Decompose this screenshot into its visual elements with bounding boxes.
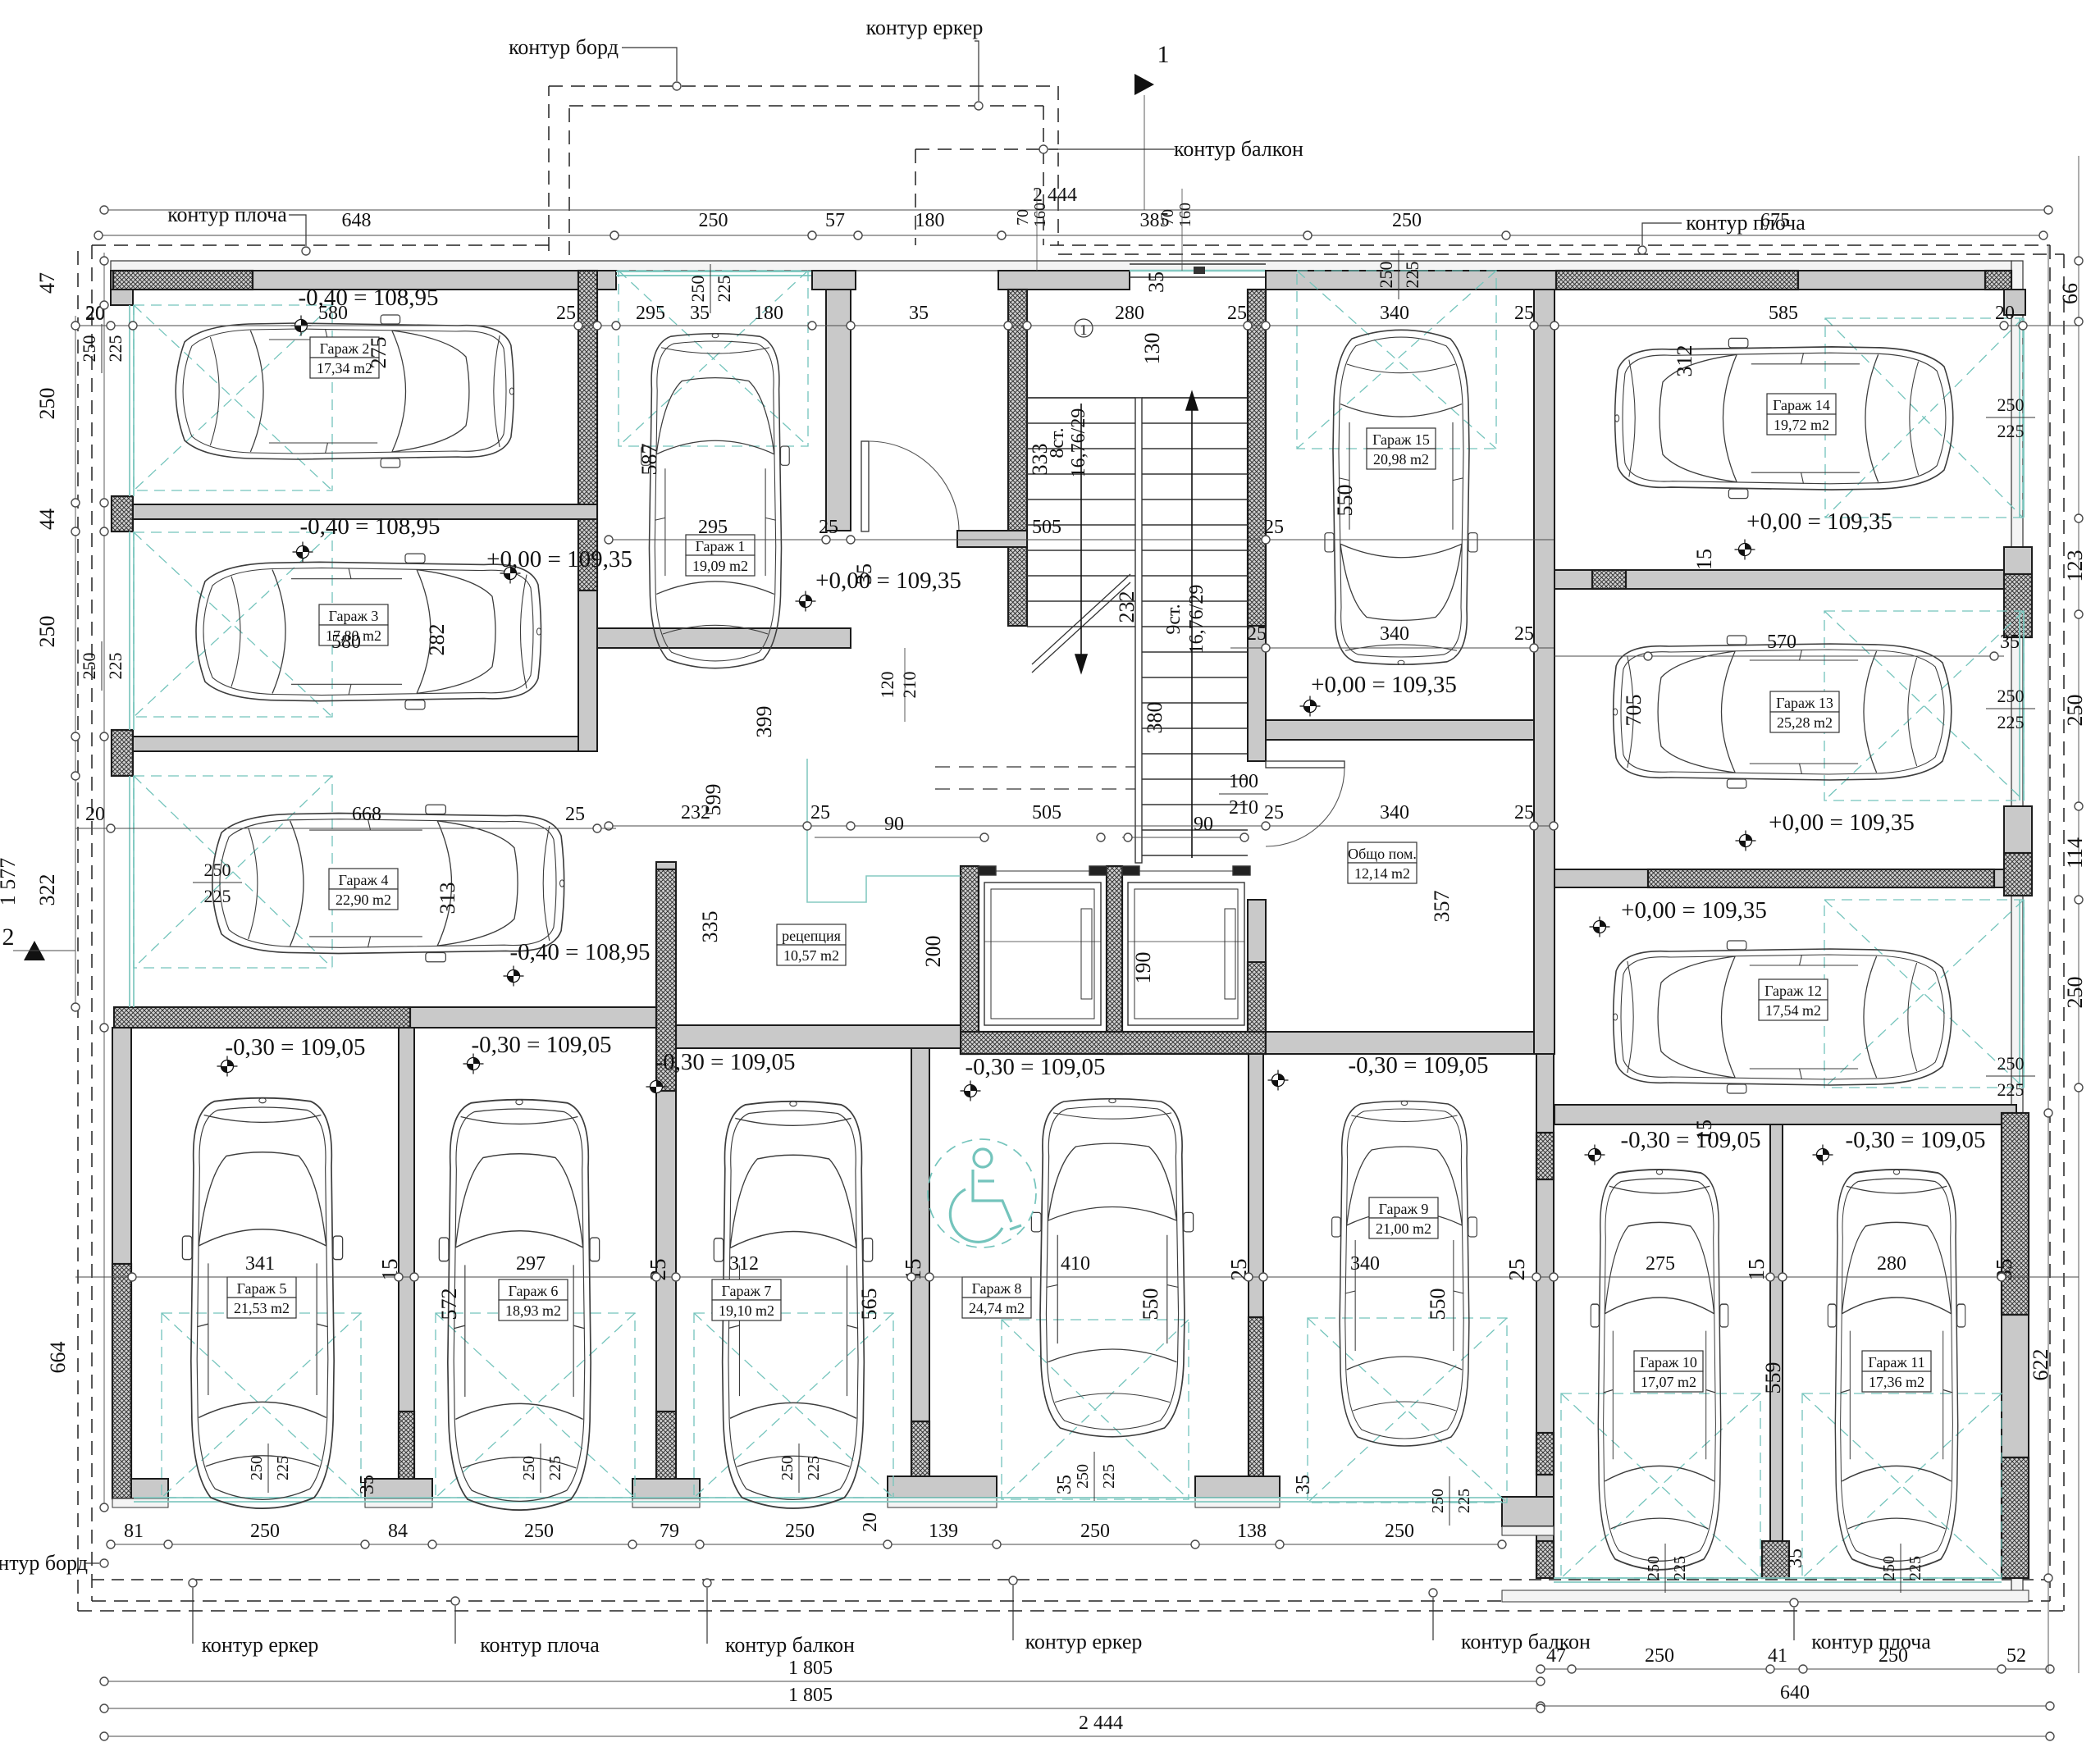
svg-text:250: 250 — [1997, 686, 2025, 706]
svg-text:225: 225 — [105, 653, 126, 680]
svg-text:232: 232 — [1115, 591, 1139, 623]
svg-text:380: 380 — [1143, 702, 1166, 734]
svg-text:15: 15 — [1692, 1120, 1716, 1141]
svg-text:Общо пом.: Общо пом. — [1348, 846, 1417, 862]
svg-text:25,28 m2: 25,28 m2 — [1777, 714, 1833, 731]
svg-text:1 805: 1 805 — [788, 1685, 833, 1706]
svg-text:Гараж 14: Гараж 14 — [1773, 397, 1830, 413]
svg-text:25: 25 — [810, 802, 830, 823]
svg-text:1 805: 1 805 — [788, 1658, 833, 1679]
svg-text:250: 250 — [79, 335, 99, 363]
svg-text:585: 585 — [1769, 303, 1798, 324]
svg-text:35: 35 — [690, 303, 710, 324]
svg-text:123: 123 — [2063, 550, 2087, 582]
svg-text:25: 25 — [1514, 802, 1534, 823]
svg-text:180: 180 — [754, 303, 783, 324]
svg-text:25: 25 — [1247, 623, 1267, 645]
svg-text:275: 275 — [367, 337, 390, 369]
svg-text:225: 225 — [204, 886, 231, 906]
svg-text:505: 505 — [1032, 517, 1061, 538]
svg-text:280: 280 — [1115, 303, 1144, 324]
svg-text:17,07 m2: 17,07 m2 — [1641, 1374, 1696, 1390]
svg-text:Гараж 8: Гараж 8 — [972, 1280, 1022, 1297]
svg-text:225: 225 — [274, 1456, 292, 1480]
svg-text:160: 160 — [1031, 203, 1049, 227]
svg-text:20: 20 — [85, 804, 105, 825]
svg-text:333: 333 — [1028, 444, 1052, 476]
svg-text:599: 599 — [701, 784, 725, 816]
svg-text:335: 335 — [698, 911, 722, 943]
svg-text:297: 297 — [516, 1253, 546, 1275]
svg-text:250: 250 — [35, 388, 59, 420]
svg-text:35: 35 — [357, 1475, 378, 1494]
svg-text:250: 250 — [1376, 262, 1396, 289]
svg-text:622: 622 — [2029, 1349, 2052, 1381]
svg-text:20: 20 — [860, 1512, 881, 1532]
svg-text:225: 225 — [546, 1456, 564, 1480]
svg-text:225: 225 — [1402, 262, 1422, 289]
svg-text:17,54 m2: 17,54 m2 — [1765, 1002, 1821, 1019]
svg-text:9ст.: 9ст. — [1163, 604, 1185, 634]
svg-text:570: 570 — [1767, 632, 1796, 653]
svg-text:70: 70 — [1014, 209, 1032, 226]
svg-text:282: 282 — [425, 624, 449, 656]
svg-text:+0,00 = 109,35: +0,00 = 109,35 — [1311, 672, 1457, 698]
svg-text:312: 312 — [1673, 345, 1696, 377]
svg-text:84: 84 — [388, 1521, 408, 1542]
svg-text:35: 35 — [2000, 632, 2020, 653]
svg-text:250: 250 — [778, 1456, 797, 1480]
svg-text:250: 250 — [1080, 1521, 1110, 1542]
svg-text:контур балкон: контур балкон — [725, 1633, 855, 1657]
svg-text:контур борд: контур борд — [0, 1551, 88, 1575]
svg-text:1: 1 — [1080, 322, 1088, 338]
svg-text:рецепция: рецепция — [782, 928, 841, 944]
svg-text:-0,40 = 108,95: -0,40 = 108,95 — [509, 939, 650, 965]
svg-text:399: 399 — [752, 706, 776, 738]
svg-text:Гараж 12: Гараж 12 — [1764, 983, 1822, 999]
svg-text:120: 120 — [877, 672, 897, 699]
svg-text:225: 225 — [1997, 712, 2025, 732]
svg-text:35: 35 — [1293, 1475, 1314, 1494]
svg-text:44: 44 — [35, 509, 59, 530]
svg-text:-0,30 = 109,05: -0,30 = 109,05 — [225, 1034, 365, 1060]
svg-text:138: 138 — [1237, 1521, 1267, 1542]
svg-text:79: 79 — [660, 1521, 679, 1542]
svg-text:1: 1 — [1157, 41, 1170, 68]
svg-text:35: 35 — [909, 303, 929, 324]
svg-text:225: 225 — [1671, 1556, 1689, 1580]
svg-text:Гараж 11: Гараж 11 — [1868, 1354, 1924, 1371]
svg-text:505: 505 — [1032, 802, 1061, 823]
svg-text:180: 180 — [915, 210, 945, 231]
svg-text:664: 664 — [46, 1342, 70, 1374]
svg-text:19,72 m2: 19,72 m2 — [1774, 417, 1829, 433]
svg-text:35: 35 — [1054, 1475, 1075, 1494]
svg-text:25: 25 — [1514, 623, 1534, 645]
svg-text:25: 25 — [1264, 517, 1284, 538]
svg-text:21,53 m2: 21,53 m2 — [234, 1300, 290, 1316]
svg-text:20: 20 — [1995, 303, 2015, 324]
svg-text:250: 250 — [204, 860, 231, 880]
svg-text:25: 25 — [1514, 303, 1534, 324]
svg-text:200: 200 — [921, 936, 945, 968]
svg-text:225: 225 — [714, 276, 734, 303]
svg-text:Гараж 6: Гараж 6 — [509, 1283, 559, 1299]
svg-text:+0,00 = 109,35: +0,00 = 109,35 — [1621, 897, 1767, 924]
svg-text:15: 15 — [1744, 1259, 1769, 1281]
svg-text:565: 565 — [857, 1288, 881, 1320]
svg-text:210: 210 — [1229, 797, 1258, 819]
svg-text:312: 312 — [729, 1253, 759, 1275]
svg-text:57: 57 — [825, 210, 845, 231]
svg-text:250: 250 — [2063, 977, 2087, 1009]
svg-text:250: 250 — [699, 210, 728, 231]
svg-text:25: 25 — [565, 804, 585, 825]
svg-text:-0,30 = 109,05: -0,30 = 109,05 — [1845, 1127, 1985, 1153]
svg-text:контур плоча: контур плоча — [1811, 1630, 1931, 1653]
svg-text:41: 41 — [1768, 1645, 1787, 1667]
svg-text:70: 70 — [1159, 209, 1177, 226]
svg-text:2: 2 — [2, 924, 15, 951]
svg-text:225: 225 — [1997, 421, 2025, 441]
svg-text:Гараж 1: Гараж 1 — [696, 538, 746, 554]
svg-text:Гараж 2: Гараж 2 — [320, 340, 370, 357]
svg-text:250: 250 — [1074, 1464, 1092, 1489]
svg-text:357: 357 — [1430, 891, 1454, 923]
svg-text:18,93 m2: 18,93 m2 — [505, 1302, 561, 1319]
svg-text:410: 410 — [1061, 1253, 1090, 1275]
svg-text:668: 668 — [352, 804, 381, 825]
svg-text:250: 250 — [785, 1521, 815, 1542]
svg-text:250: 250 — [1392, 210, 1422, 231]
svg-text:35: 35 — [1785, 1548, 1806, 1568]
svg-text:190: 190 — [1131, 952, 1155, 984]
svg-text:250: 250 — [687, 276, 708, 303]
svg-text:контур борд: контур борд — [509, 35, 619, 59]
svg-text:Гараж 3: Гараж 3 — [329, 608, 379, 624]
svg-text:Гараж 13: Гараж 13 — [1776, 695, 1833, 711]
svg-text:250: 250 — [1997, 395, 2025, 415]
svg-text:-0,30 = 109,05: -0,30 = 109,05 — [655, 1049, 795, 1075]
svg-text:160: 160 — [1176, 203, 1194, 227]
svg-text:Гараж 9: Гараж 9 — [1379, 1201, 1429, 1217]
svg-text:19,09 m2: 19,09 m2 — [692, 558, 748, 574]
svg-text:250: 250 — [1385, 1521, 1414, 1542]
svg-text:250: 250 — [248, 1456, 266, 1480]
svg-text:47: 47 — [35, 272, 59, 294]
svg-text:550: 550 — [1426, 1288, 1449, 1320]
svg-text:210: 210 — [899, 672, 920, 699]
svg-text:19,10 m2: 19,10 m2 — [719, 1302, 774, 1319]
svg-text:250: 250 — [250, 1521, 280, 1542]
svg-text:225: 225 — [105, 335, 126, 363]
svg-text:контур еркер: контур еркер — [202, 1633, 319, 1657]
svg-text:341: 341 — [245, 1253, 275, 1275]
svg-text:250: 250 — [79, 653, 99, 680]
svg-text:295: 295 — [698, 517, 728, 538]
svg-text:640: 640 — [1780, 1682, 1810, 1704]
svg-text:340: 340 — [1380, 623, 1409, 645]
svg-text:контур еркер: контур еркер — [866, 16, 984, 39]
svg-text:25: 25 — [1264, 802, 1284, 823]
svg-text:280: 280 — [1877, 1253, 1906, 1275]
svg-text:572: 572 — [437, 1288, 461, 1320]
svg-text:12,14 m2: 12,14 m2 — [1354, 865, 1410, 882]
svg-text:16,76/29: 16,76/29 — [1068, 408, 1089, 478]
svg-text:1 577: 1 577 — [0, 858, 20, 906]
svg-text:35: 35 — [852, 563, 876, 585]
svg-text:250: 250 — [2063, 695, 2087, 727]
svg-text:-0,40 = 108,95: -0,40 = 108,95 — [299, 513, 440, 540]
svg-text:550: 550 — [1139, 1288, 1162, 1320]
svg-text:322: 322 — [35, 874, 59, 906]
svg-text:25: 25 — [1504, 1259, 1529, 1281]
svg-text:20,98 m2: 20,98 m2 — [1373, 451, 1429, 468]
svg-text:705: 705 — [1622, 695, 1646, 727]
svg-text:340: 340 — [1380, 303, 1409, 324]
svg-text:295: 295 — [636, 303, 665, 324]
svg-text:35: 35 — [1144, 271, 1168, 293]
svg-text:16,76/29: 16,76/29 — [1186, 585, 1207, 655]
svg-text:90: 90 — [884, 814, 904, 835]
svg-text:225: 225 — [1455, 1489, 1473, 1513]
svg-text:+0,00 = 109,35: +0,00 = 109,35 — [815, 568, 961, 594]
svg-text:559: 559 — [1761, 1362, 1785, 1394]
svg-text:648: 648 — [342, 210, 372, 231]
svg-text:-0,30 = 109,05: -0,30 = 109,05 — [965, 1054, 1105, 1080]
svg-text:313: 313 — [436, 883, 459, 914]
svg-text:250: 250 — [1645, 1645, 1674, 1667]
svg-text:25: 25 — [819, 517, 838, 538]
svg-text:587: 587 — [637, 444, 661, 476]
svg-text:52: 52 — [2006, 1645, 2026, 1667]
svg-text:250: 250 — [1997, 1053, 2025, 1074]
svg-text:контур балкон: контур балкон — [1174, 137, 1303, 161]
svg-text:-0,30 = 109,05: -0,30 = 109,05 — [1348, 1052, 1488, 1079]
svg-text:90: 90 — [1194, 814, 1213, 835]
svg-text:580: 580 — [331, 632, 361, 653]
svg-text:580: 580 — [318, 303, 348, 324]
svg-text:225: 225 — [805, 1456, 823, 1480]
svg-text:250: 250 — [520, 1456, 538, 1480]
svg-text:139: 139 — [929, 1521, 958, 1542]
svg-text:2 444: 2 444 — [1079, 1713, 1123, 1734]
svg-text:225: 225 — [1100, 1464, 1118, 1489]
svg-text:340: 340 — [1350, 1253, 1380, 1275]
svg-text:25: 25 — [556, 303, 576, 324]
svg-text:10,57 m2: 10,57 m2 — [783, 947, 839, 964]
svg-text:250: 250 — [524, 1521, 554, 1542]
svg-text:17,34 m2: 17,34 m2 — [317, 360, 372, 376]
svg-text:Гараж 10: Гараж 10 — [1640, 1354, 1697, 1371]
svg-text:+0,00 = 109,35: +0,00 = 109,35 — [1769, 810, 1915, 836]
svg-text:Гараж 5: Гараж 5 — [237, 1280, 287, 1297]
svg-text:340: 340 — [1380, 802, 1409, 823]
svg-text:250: 250 — [1429, 1489, 1447, 1513]
svg-text:17,36 m2: 17,36 m2 — [1869, 1374, 1924, 1390]
svg-text:66: 66 — [2058, 283, 2082, 304]
svg-text:контур плоча: контур плоча — [480, 1633, 600, 1657]
svg-text:15: 15 — [1692, 549, 1716, 570]
svg-text:+0,00 = 109,35: +0,00 = 109,35 — [1746, 509, 1892, 535]
svg-text:275: 275 — [1646, 1253, 1675, 1275]
svg-text:Гараж 15: Гараж 15 — [1372, 431, 1430, 448]
svg-text:25: 25 — [1227, 303, 1247, 324]
svg-text:225: 225 — [1997, 1079, 2025, 1100]
svg-text:550: 550 — [1333, 485, 1357, 517]
svg-text:225: 225 — [1906, 1556, 1924, 1580]
svg-text:контур плоча: контур плоча — [167, 203, 287, 226]
svg-text:250: 250 — [1645, 1556, 1663, 1580]
svg-text:контур еркер: контур еркер — [1025, 1630, 1143, 1653]
svg-text:114: 114 — [2063, 837, 2087, 869]
svg-text:24,74 m2: 24,74 m2 — [969, 1300, 1025, 1316]
svg-text:Гараж 4: Гараж 4 — [339, 872, 389, 888]
svg-text:250: 250 — [1880, 1556, 1898, 1580]
svg-text:контур плоча: контур плоча — [1686, 211, 1806, 235]
svg-text:-0,30 = 109,05: -0,30 = 109,05 — [1620, 1127, 1760, 1153]
svg-text:81: 81 — [124, 1521, 144, 1542]
svg-text:22,90 m2: 22,90 m2 — [336, 892, 391, 908]
svg-text:130: 130 — [1140, 333, 1164, 365]
svg-text:21,00 m2: 21,00 m2 — [1376, 1220, 1431, 1237]
svg-text:-0,30 = 109,05: -0,30 = 109,05 — [471, 1032, 611, 1058]
svg-text:контур балкон: контур балкон — [1461, 1630, 1591, 1653]
svg-text:250: 250 — [35, 616, 59, 648]
svg-text:Гараж 7: Гараж 7 — [722, 1283, 772, 1299]
svg-text:100: 100 — [1229, 771, 1258, 792]
